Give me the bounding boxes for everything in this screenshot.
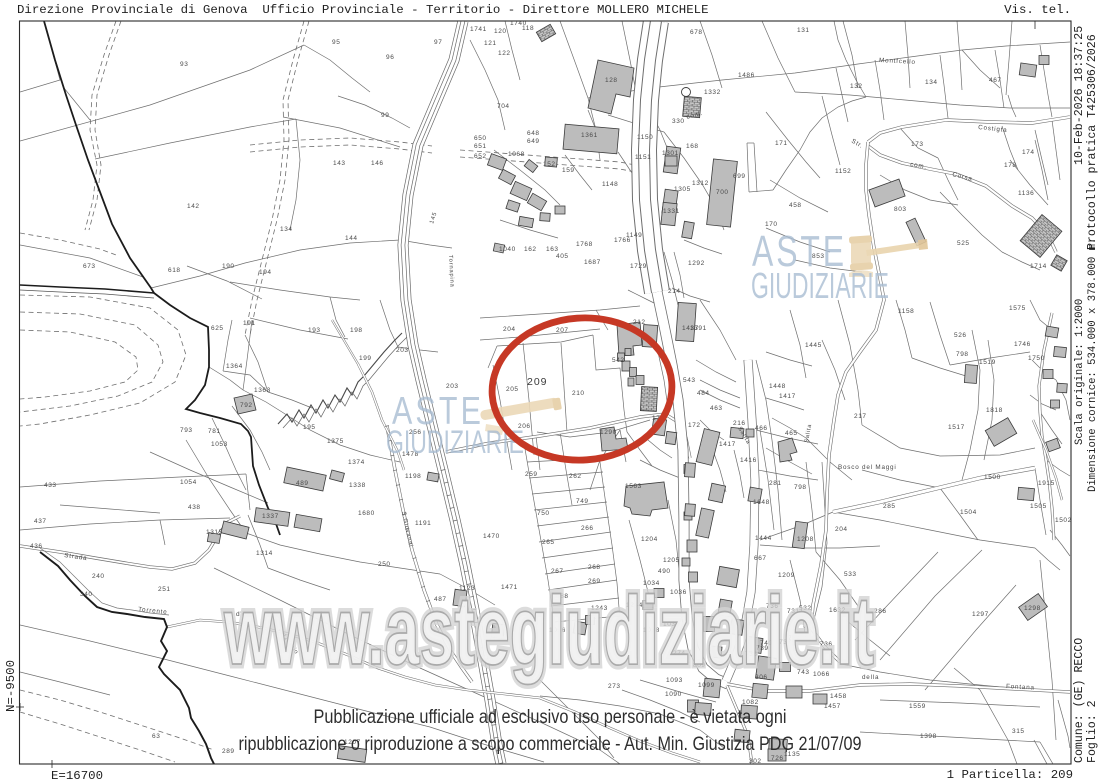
svg-text:Dimensione cornice: 534.000 x: Dimensione cornice: 534.000 x 378.000 m. [1087,238,1099,492]
svg-text:GIUDIZIARIE: GIUDIZIARIE [751,265,889,306]
svg-text:1305: 1305 [674,186,691,193]
svg-text:1559: 1559 [909,703,926,710]
svg-text:1040: 1040 [499,246,516,253]
svg-text:1746: 1746 [1014,341,1031,348]
svg-text:1444: 1444 [755,535,772,542]
svg-text:1149: 1149 [626,232,642,239]
svg-text:543: 543 [683,377,696,384]
svg-text:286: 286 [874,608,887,615]
svg-text:Bosco del Maggi: Bosco del Maggi [838,464,897,471]
svg-text:1486: 1486 [738,72,755,79]
svg-text:463: 463 [710,405,723,412]
svg-text:120: 120 [494,28,507,35]
svg-text:168: 168 [686,143,699,150]
svg-text:173: 173 [911,141,924,148]
svg-text:1290: 1290 [600,429,617,436]
svg-text:1208: 1208 [797,536,814,543]
svg-text:162: 162 [524,246,537,253]
svg-text:128: 128 [605,77,618,84]
svg-text:667: 667 [754,555,767,562]
svg-text:1297: 1297 [972,611,989,618]
svg-text:1416: 1416 [740,457,757,464]
svg-text:1331: 1331 [663,208,680,215]
svg-text:1158: 1158 [898,308,914,315]
svg-text:174: 174 [1022,149,1035,156]
svg-text:93: 93 [180,61,188,68]
svg-text:1361: 1361 [581,132,598,139]
svg-text:193: 193 [308,327,321,334]
svg-text:268: 268 [588,564,601,571]
svg-text:144: 144 [345,235,358,242]
svg-text:99: 99 [381,112,389,119]
svg-text:Vis. tel.: Vis. tel. [1004,3,1071,17]
svg-text:1191: 1191 [415,520,431,527]
svg-text:1298: 1298 [1024,605,1041,612]
svg-text:618: 618 [168,267,181,274]
svg-text:E=16700: E=16700 [51,769,103,783]
svg-text:190: 190 [222,263,235,270]
svg-text:340: 340 [80,591,93,598]
svg-text:Foglio: 2: Foglio: 2 [1086,700,1099,763]
svg-text:1151: 1151 [635,154,651,161]
svg-text:467: 467 [989,77,1002,84]
svg-text:1680: 1680 [358,510,375,517]
svg-text:648: 648 [527,130,540,137]
svg-text:97: 97 [434,39,442,46]
svg-text:651: 651 [474,143,487,150]
svg-text:214: 214 [668,288,681,295]
svg-text:749: 749 [576,498,589,505]
svg-text:Scala originale: 1:2000: Scala originale: 1:2000 [1074,299,1086,445]
svg-text:163: 163 [546,246,559,253]
svg-text:265: 265 [542,539,555,546]
svg-text:ripubblicazione o riproduzione: ripubblicazione o riproduzione a scopo c… [239,733,862,755]
svg-text:63: 63 [152,733,160,740]
svg-text:95: 95 [332,39,340,46]
svg-text:1517: 1517 [948,424,965,431]
svg-text:142: 142 [187,203,200,210]
svg-text:212: 212 [633,319,646,326]
svg-text:204: 204 [503,326,516,333]
svg-text:134: 134 [280,226,293,233]
svg-text:1768: 1768 [576,241,593,248]
svg-text:1448: 1448 [769,383,786,390]
svg-text:798: 798 [956,351,969,358]
svg-text:1338: 1338 [349,482,366,489]
svg-text:433: 433 [44,482,57,489]
svg-text:262: 262 [569,473,582,480]
svg-text:1504: 1504 [960,509,977,516]
svg-text:405: 405 [556,253,569,260]
svg-text:526: 526 [954,332,967,339]
svg-text:793: 793 [180,427,193,434]
svg-text:1470: 1470 [483,533,500,540]
svg-text:525: 525 [957,240,970,247]
svg-text:267: 267 [551,568,564,575]
svg-text:1312: 1312 [692,180,709,187]
svg-text:10-Feb-2026 18:37:25: 10-Feb-2026 18:37:25 [1073,26,1086,165]
svg-text:159: 159 [562,167,575,174]
svg-text:1315: 1315 [206,529,223,536]
svg-text:1818: 1818 [986,407,1003,414]
svg-text:122: 122 [498,50,511,57]
svg-text:203: 203 [396,347,409,354]
svg-text:1205: 1205 [663,557,680,564]
svg-text:266: 266 [581,525,594,532]
svg-text:1445: 1445 [805,342,822,349]
svg-text:315: 315 [1012,728,1025,735]
svg-text:1068: 1068 [508,151,525,158]
svg-text:121: 121 [484,40,497,47]
svg-text:191: 191 [243,320,256,327]
svg-text:330: 330 [672,118,685,125]
svg-text:198: 198 [350,327,363,334]
svg-text:1505: 1505 [1030,503,1047,510]
svg-text:195: 195 [303,424,316,431]
svg-text:289: 289 [222,748,235,755]
svg-text:490: 490 [658,568,671,575]
svg-text:1500: 1500 [984,474,1001,481]
svg-text:798: 798 [794,484,807,491]
svg-text:152: 152 [543,161,556,168]
svg-text:1375: 1375 [327,438,344,445]
svg-text:1417: 1417 [719,441,736,448]
svg-text:1915: 1915 [1038,480,1055,487]
svg-text:1741: 1741 [470,26,487,33]
svg-text:1090: 1090 [665,691,682,698]
svg-text:704: 704 [497,103,510,110]
svg-text:216: 216 [733,420,746,427]
svg-text:625: 625 [211,325,224,332]
svg-text:1054: 1054 [180,479,197,486]
svg-text:652: 652 [474,153,487,160]
svg-text:1563: 1563 [625,483,642,490]
svg-text:171: 171 [775,140,788,147]
svg-text:1575: 1575 [1009,305,1026,312]
svg-text:1152: 1152 [835,168,851,175]
svg-text:210: 210 [572,390,585,397]
svg-text:Direzione Provinciale di Genov: Direzione Provinciale di Genova Ufficio … [17,3,709,17]
svg-text:1750: 1750 [1028,355,1045,362]
svg-text:1337: 1337 [262,513,279,520]
svg-text:Comune: (GE) RECCO: Comune: (GE) RECCO [1073,638,1086,763]
svg-text:1364: 1364 [226,363,243,370]
svg-text:1053: 1053 [211,441,228,448]
svg-text:209: 209 [527,376,548,388]
svg-text:1417: 1417 [779,393,796,400]
svg-text:465: 465 [785,430,798,437]
svg-text:204: 204 [835,526,848,533]
svg-text:143: 143 [333,160,346,167]
svg-text:1374: 1374 [348,459,365,466]
svg-text:750: 750 [537,510,550,517]
svg-text:281: 281 [769,480,782,487]
svg-text:1729: 1729 [630,263,647,270]
svg-text:134: 134 [925,79,938,86]
svg-text:1363: 1363 [254,387,271,394]
svg-text:1458: 1458 [830,693,847,700]
svg-text:1082: 1082 [742,699,759,706]
svg-text:146: 146 [371,160,384,167]
svg-text:649: 649 [527,138,540,145]
svg-text:489: 489 [296,480,309,487]
svg-text:1398: 1398 [920,733,937,740]
svg-text:1292: 1292 [688,260,705,267]
svg-text:542: 542 [612,357,625,364]
svg-text:1136: 1136 [1018,190,1034,197]
svg-text:437: 437 [34,518,47,525]
svg-text:1 Particella: 209: 1 Particella: 209 [947,768,1073,782]
svg-text:458: 458 [789,202,802,209]
svg-text:251: 251 [158,586,171,593]
svg-text:199: 199 [359,355,372,362]
svg-text:203: 203 [446,383,459,390]
svg-text:726: 726 [771,755,784,762]
svg-text:172: 172 [688,422,701,429]
svg-text:131: 131 [797,27,810,34]
svg-text:803: 803 [894,206,907,213]
svg-text:1301: 1301 [662,150,679,157]
svg-text:Pubblicazione ufficiale ad esc: Pubblicazione ufficiale ad esclusivo uso… [314,706,787,728]
svg-text:217: 217 [854,413,867,420]
svg-text:484: 484 [697,390,710,397]
svg-text:438: 438 [188,504,201,511]
svg-text:700: 700 [716,189,729,196]
svg-text:1150: 1150 [637,134,653,141]
svg-text:194: 194 [259,269,272,276]
svg-text:132: 132 [850,83,863,90]
svg-text:1391: 1391 [690,325,707,332]
svg-text:96: 96 [386,54,394,61]
svg-text:1148: 1148 [602,181,618,188]
svg-text:436: 436 [30,543,43,550]
svg-text:178: 178 [1004,162,1017,169]
svg-text:673: 673 [83,263,96,270]
svg-text:240: 240 [92,573,105,580]
svg-text:1502: 1502 [1055,517,1072,524]
svg-text:250: 250 [378,561,391,568]
svg-text:1519: 1519 [979,359,996,366]
svg-text:www.astegiudiziarie.it: www.astegiudiziarie.it [223,576,874,685]
svg-text:699: 699 [733,173,746,180]
svg-text:207: 207 [556,327,569,334]
svg-text:285: 285 [883,503,896,510]
svg-text:118: 118 [522,25,534,32]
svg-text:205: 205 [506,386,519,393]
svg-text:678: 678 [690,29,703,36]
svg-text:259: 259 [525,471,538,478]
svg-text:1204: 1204 [641,536,658,543]
svg-text:N=-9500: N=-9500 [4,660,18,712]
svg-text:1314: 1314 [256,550,273,557]
svg-text:1198: 1198 [405,473,421,480]
svg-text:1457: 1457 [824,703,841,710]
svg-text:792: 792 [240,402,253,409]
svg-text:650: 650 [474,135,487,142]
svg-text:Protocollo pratica T425306/202: Protocollo pratica T425306/2026 [1086,34,1099,250]
svg-text:466: 466 [755,425,768,432]
svg-text:1332: 1332 [704,89,721,96]
svg-text:1687: 1687 [584,259,601,266]
svg-text:1714: 1714 [1030,263,1047,270]
svg-text:1648: 1648 [753,499,770,506]
svg-text:781: 781 [208,428,221,435]
